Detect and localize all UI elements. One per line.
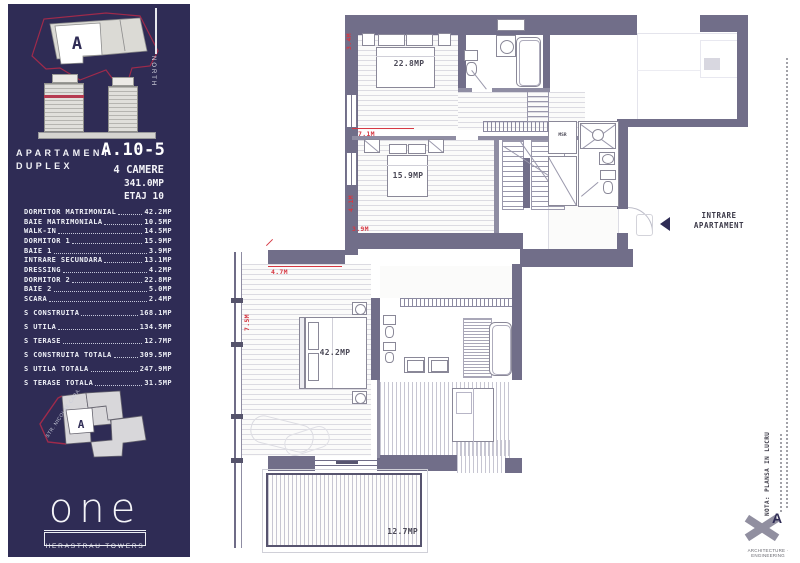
floor-vestibul-intrare bbox=[548, 205, 619, 251]
entrance-label-line1: INTRARE bbox=[684, 211, 754, 221]
window-upper-2 bbox=[346, 153, 357, 185]
leader-dots bbox=[58, 329, 137, 330]
curtain-wall-left bbox=[234, 252, 242, 548]
room-label-matrimonial: 42.2MP bbox=[309, 348, 361, 357]
entrance-label: INTRARE APARTAMENT bbox=[684, 211, 754, 231]
room-area: 4.2MP bbox=[149, 266, 172, 274]
north-label: NORTH bbox=[150, 56, 156, 100]
room-name: S TERASE TOTALA bbox=[24, 379, 93, 387]
floor-walk-in-ext bbox=[457, 440, 512, 473]
nightstand-icon bbox=[362, 33, 375, 46]
sliding-door-leaf bbox=[336, 461, 358, 464]
room-list-row: DORMITOR MATRIMONIAL42.2MP bbox=[24, 208, 172, 216]
bed-fold-line bbox=[376, 56, 435, 57]
pillow-icon bbox=[308, 353, 319, 381]
sidebar: A NORTH APARTAMENT A.10-5 DUPLEX 4 CAMER… bbox=[8, 4, 190, 557]
stairs-upper-flight bbox=[527, 90, 549, 122]
rooms-count: 4 CAMERE bbox=[100, 164, 164, 176]
adjacent-area-fixture bbox=[704, 58, 720, 70]
door-leaf-baie2 bbox=[471, 70, 487, 90]
leader-dots bbox=[95, 385, 142, 386]
room-label-dormitor1: 15.9MP bbox=[382, 171, 434, 180]
stairs-flight-left bbox=[502, 140, 524, 210]
room-area: 13.1MP bbox=[144, 256, 172, 264]
mullion-tick-4 bbox=[231, 458, 243, 463]
tower-cap bbox=[112, 77, 134, 86]
leader-dots bbox=[54, 253, 147, 254]
room-area: 12.7MP bbox=[144, 337, 172, 345]
room-list-row: BAIE MATRIMONIALA10.5MP bbox=[24, 218, 172, 226]
wall-niche bbox=[497, 19, 525, 31]
bathtub-inner-baie2 bbox=[519, 40, 540, 86]
room-name: DRESSING bbox=[24, 266, 61, 274]
leader-dots bbox=[54, 291, 147, 292]
total-area: 341.0MP bbox=[100, 178, 164, 189]
bidet-icon bbox=[383, 342, 396, 351]
room-list-row: S TERASE12.7MP bbox=[24, 337, 172, 345]
room-name: WALK-IN bbox=[24, 227, 56, 235]
room-area: 247.9MP bbox=[140, 365, 172, 373]
street-map-marker: A bbox=[78, 418, 85, 431]
wall-walkin-bottom bbox=[505, 458, 522, 473]
site-map-marker: A bbox=[72, 34, 82, 54]
room-list-row: S CONSTRUITA TOTALA309.5MP bbox=[24, 351, 172, 359]
room-area: 22.8MP bbox=[144, 276, 172, 284]
dimension-tick bbox=[266, 239, 273, 246]
dimension-line bbox=[352, 128, 414, 129]
wall-upper-bottom-1 bbox=[345, 233, 523, 249]
room-name: S UTILA bbox=[24, 323, 56, 331]
leader-dots bbox=[63, 272, 147, 273]
bidet-bowl bbox=[385, 352, 394, 363]
sink-basin-baie2 bbox=[500, 40, 514, 54]
fine-print-strip-2 bbox=[780, 434, 782, 512]
site-map: A bbox=[20, 6, 170, 104]
firm-logo-letter: A bbox=[772, 510, 782, 526]
room-list-row: BAIE 13.9MP bbox=[24, 247, 172, 255]
leader-dots bbox=[104, 262, 142, 263]
room-list-row: S CONSTRUITA168.1MP bbox=[24, 309, 172, 317]
room-name: SCARA bbox=[24, 295, 47, 303]
room-area: 2.4MP bbox=[149, 295, 172, 303]
leader-dots bbox=[72, 243, 142, 244]
toilet-icon-baie2 bbox=[464, 50, 478, 61]
wall-walkin-left bbox=[377, 380, 380, 458]
firm-tagline: ARCHITECTURE · ENGINEERING bbox=[736, 548, 800, 558]
wardrobe-box-icon bbox=[364, 139, 380, 153]
brand-logo-subtitle-box: HERASTRAU TOWERS bbox=[44, 532, 146, 546]
lamp-icon bbox=[355, 393, 366, 404]
room-name: INTRARE SECUNDARA bbox=[24, 256, 102, 264]
leader-dots bbox=[58, 233, 142, 234]
wall-bath-divider bbox=[371, 298, 380, 380]
bed-fold-line bbox=[387, 165, 428, 166]
wall-right-top-vertical bbox=[737, 15, 748, 127]
room-area: 31.5MP bbox=[144, 379, 172, 387]
leader-dots bbox=[104, 224, 142, 225]
shaft-diagonal bbox=[548, 157, 577, 206]
room-name: BAIE 1 bbox=[24, 247, 52, 255]
shaft-box bbox=[548, 156, 577, 206]
room-name: DORMITOR MATRIMONIAL bbox=[24, 208, 116, 216]
mullion-tick-3 bbox=[231, 414, 243, 419]
room-list-row: DORMITOR 115.9MP bbox=[24, 237, 172, 245]
nightstand-icon bbox=[438, 33, 451, 46]
tower-left bbox=[44, 83, 84, 132]
window-upper-1 bbox=[346, 95, 357, 127]
room-name: S UTILA TOTALA bbox=[24, 365, 89, 373]
radiator-icon bbox=[463, 318, 492, 378]
room-area: 3.9MP bbox=[149, 247, 172, 255]
street-map: A STR. NICOLAE CARAMFIL bbox=[28, 390, 163, 462]
room-list-row: SCARA2.4MP bbox=[24, 295, 172, 303]
leader-dots bbox=[118, 214, 142, 215]
sink-basin-baie1 bbox=[602, 154, 614, 164]
entrance-arrow-icon bbox=[660, 217, 670, 231]
wall-mid-right-horizontal bbox=[617, 119, 748, 127]
wall-baie2-bottom-a bbox=[458, 88, 472, 92]
room-area: 309.5MP bbox=[140, 351, 172, 359]
brand-logo-subtitle: HERASTRAU TOWERS bbox=[46, 543, 145, 550]
wardrobe-shelf bbox=[456, 392, 472, 414]
dimension-3-4m: 3.4M bbox=[345, 24, 353, 50]
tower-cap bbox=[52, 74, 78, 83]
room-list-row: DORMITOR 222.8MP bbox=[24, 276, 172, 284]
wall-baie2-left bbox=[458, 33, 466, 91]
room-list-row: S TERASE TOTALA31.5MP bbox=[24, 379, 172, 387]
dimension-7-1m: 7.1M bbox=[358, 130, 375, 138]
bathtub-inner-matrimonial bbox=[492, 325, 511, 375]
sink-basin-double-1 bbox=[407, 360, 424, 372]
leader-dots bbox=[114, 357, 138, 358]
room-label-dormitor2: 22.8MP bbox=[383, 59, 435, 68]
wall-baie2-bottom-b bbox=[492, 88, 550, 92]
pillow-icon bbox=[408, 144, 426, 154]
room-name: DORMITOR 1 bbox=[24, 237, 70, 245]
sliding-door-line bbox=[315, 465, 377, 466]
room-name: BAIE MATRIMONIALA bbox=[24, 218, 102, 226]
tower-base bbox=[38, 132, 156, 139]
leader-dots bbox=[63, 343, 142, 344]
wall-top-main bbox=[345, 15, 637, 35]
apartment-type: DUPLEX bbox=[16, 161, 73, 171]
pillow-icon bbox=[308, 322, 319, 350]
tower-right bbox=[108, 86, 138, 132]
leader-dots bbox=[81, 315, 137, 316]
leader-dots bbox=[72, 282, 142, 283]
room-name: DORMITOR 2 bbox=[24, 276, 70, 284]
floor-hall-secundara bbox=[380, 266, 512, 298]
wall-lower-right bbox=[512, 264, 522, 380]
room-area: 168.1MP bbox=[140, 309, 172, 317]
room-list-row: BAIE 25.0MP bbox=[24, 285, 172, 293]
room-name: BAIE 2 bbox=[24, 285, 52, 293]
wardrobe-rod-line bbox=[473, 388, 474, 442]
pillow-icon bbox=[378, 34, 405, 46]
room-area: 5.0MP bbox=[149, 285, 172, 293]
leader-dots bbox=[91, 371, 138, 372]
floor-plan-sheet: MSR INTRARE APARTAMENT 22.8MP bbox=[0, 0, 800, 563]
wall-left-upper bbox=[345, 15, 358, 255]
room-list-row: WALK-IN14.5MP bbox=[24, 227, 172, 235]
entrance-ghost-icon bbox=[636, 214, 653, 236]
fine-print-strip bbox=[786, 58, 788, 510]
room-list-row: INTRARE SECUNDARA13.1MP bbox=[24, 256, 172, 264]
brand-logo-underline bbox=[44, 530, 146, 531]
wardrobe-box-icon bbox=[428, 139, 444, 153]
room-area: 15.9MP bbox=[144, 237, 172, 245]
wall-lower-top bbox=[268, 250, 345, 264]
lamp-icon bbox=[355, 304, 366, 315]
stairs-spine-wall bbox=[523, 158, 530, 208]
room-name: S TERASE bbox=[24, 337, 61, 345]
dimension-4-7m: 4.7M bbox=[271, 268, 288, 276]
shower-head-icon bbox=[592, 129, 604, 141]
toilet-icon-matrimonial bbox=[383, 315, 396, 325]
dimension-line bbox=[268, 266, 342, 267]
entrance-label-line2: APARTAMENT bbox=[684, 221, 754, 231]
apartment-code: A.10-5 bbox=[101, 140, 165, 160]
dimension-3-9m: 3.9M bbox=[352, 225, 369, 233]
pillow-icon bbox=[406, 34, 433, 46]
toilet-icon-baie1 bbox=[600, 170, 616, 180]
room-list-row: S UTILA TOTALA247.9MP bbox=[24, 365, 172, 373]
room-list-row: S UTILA134.5MP bbox=[24, 323, 172, 331]
floor-number: ETAJ 10 bbox=[100, 191, 164, 202]
pillow-icon bbox=[389, 144, 407, 154]
room-label-terasa: 12.7MP bbox=[372, 527, 418, 536]
mullion-tick-2 bbox=[231, 342, 243, 347]
toilet-bowl-baie1 bbox=[603, 181, 613, 194]
room-area: 42.2MP bbox=[144, 208, 172, 216]
room-area: 10.5MP bbox=[144, 218, 172, 226]
wall-upper-bottom-2 bbox=[520, 249, 633, 267]
north-line bbox=[155, 8, 157, 54]
room-name: S CONSTRUITA TOTALA bbox=[24, 351, 112, 359]
sink-basin-double-2 bbox=[431, 360, 448, 372]
adjacent-area-line bbox=[637, 70, 700, 71]
room-area: 14.5MP bbox=[144, 227, 172, 235]
apartment-word: APARTAMENT bbox=[16, 148, 112, 158]
work-in-progress-note: NOTA: PLANSA IN LUCRU bbox=[764, 430, 771, 516]
highlight-floor-line bbox=[44, 95, 84, 98]
dimension-4-1m: 4.1M bbox=[347, 186, 355, 212]
wall-dormitor1-right bbox=[494, 140, 499, 233]
msr-label: MSR bbox=[548, 133, 577, 138]
room-list-row: DRESSING4.2MP bbox=[24, 266, 172, 274]
brand-logo: one bbox=[30, 486, 160, 532]
wall-right-entrance-stub bbox=[617, 233, 628, 249]
mullion-tick-1 bbox=[231, 298, 243, 303]
room-area: 134.5MP bbox=[140, 323, 172, 331]
toilet-bowl-matrimonial bbox=[385, 326, 394, 338]
room-name: S CONSTRUITA bbox=[24, 309, 79, 317]
leader-dots bbox=[49, 301, 147, 302]
dimension-7-5m: 7.5M bbox=[243, 305, 251, 331]
wall-baie2-right bbox=[543, 33, 550, 91]
